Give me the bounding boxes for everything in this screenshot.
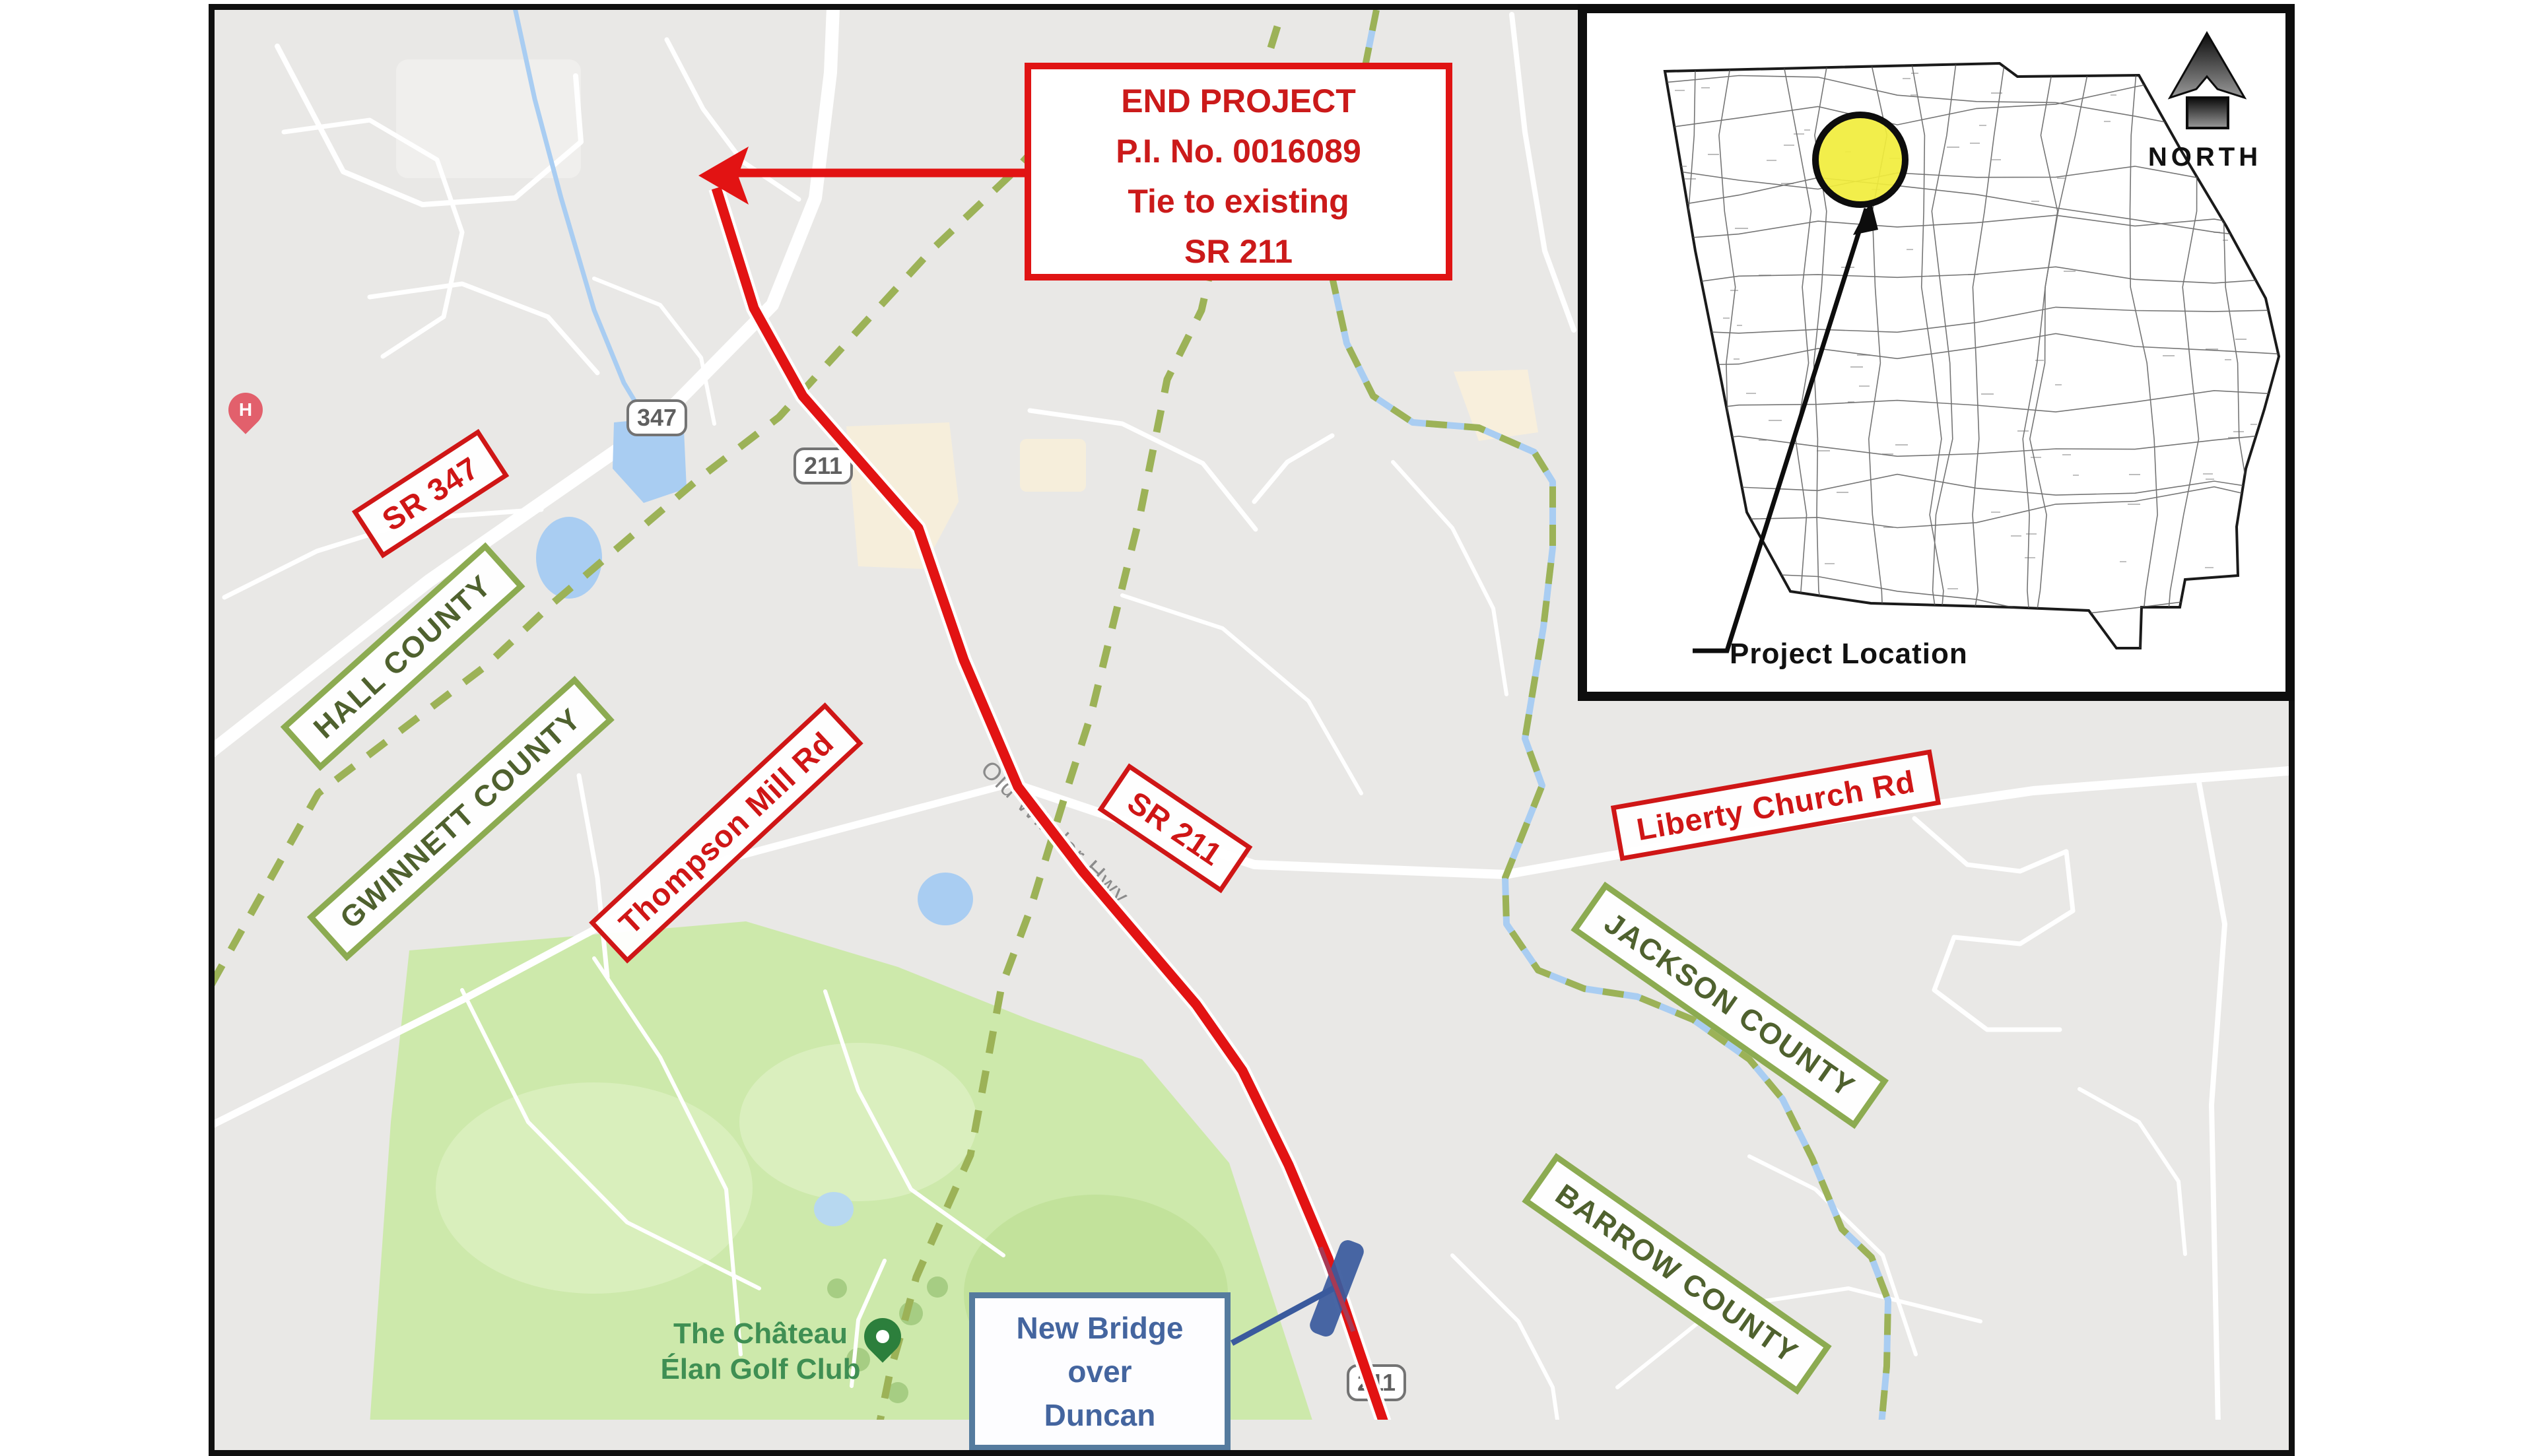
georgia-county-map (1587, 13, 2285, 692)
project-location-circle (1815, 115, 1905, 205)
end-project-callout: END PROJECT P.I. No. 0016089 Tie to exis… (1025, 63, 1452, 281)
north-label: NORTH (2148, 143, 2262, 172)
end-project-line4: SR 211 (1031, 226, 1446, 277)
bridge-callout-line1: New Bridge (975, 1306, 1225, 1350)
north-arrow-icon (2170, 33, 2245, 128)
golf-club-label: The Château Élan Golf Club (660, 1316, 860, 1387)
end-project-line1: END PROJECT (1031, 76, 1446, 126)
bridge-callout-line2: over (975, 1350, 1225, 1393)
project-location-label: Project Location (1730, 638, 1968, 671)
georgia-inset-map: NORTH Project Location (1578, 4, 2295, 701)
end-project-line3: Tie to existing (1031, 176, 1446, 226)
hospital-pin-icon: H (221, 385, 270, 434)
end-project-line2: P.I. No. 0016089 (1031, 126, 1446, 176)
project-route-line (716, 188, 1384, 1420)
bridge-callout-line3: Duncan (975, 1393, 1225, 1437)
golf-club-pin-icon (856, 1310, 908, 1362)
new-bridge-callout: New Bridge over Duncan (969, 1292, 1231, 1451)
